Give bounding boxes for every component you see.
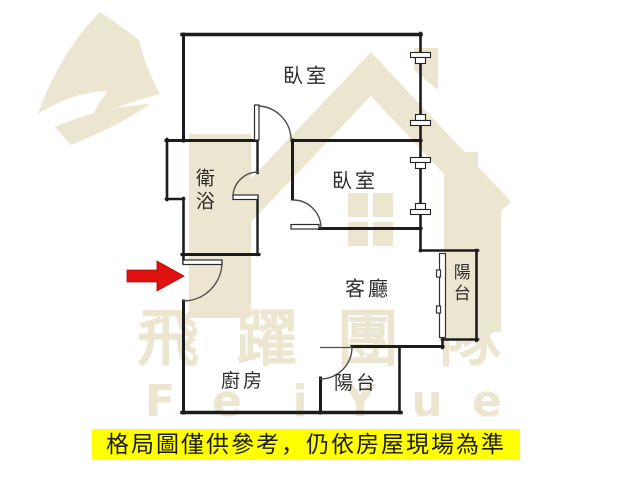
disclaimer-text: 格局圖僅供參考，仍依房屋現場為準 — [106, 433, 506, 456]
door-arc-bedroom-2 — [293, 200, 321, 228]
room-label-living-room: 客廳 — [345, 279, 391, 302]
door-panel-bedroom-2 — [291, 225, 319, 230]
room-label-balcony-bottom: 陽台 — [334, 373, 378, 395]
door-panel-entrance — [183, 260, 222, 265]
disclaimer-bar: 格局圖僅供參考，仍依房屋現場為準 — [92, 429, 520, 460]
sliding-door — [437, 254, 446, 338]
door-arc-entrance — [183, 262, 222, 301]
room-label-kitchen: 廚房 — [221, 371, 265, 393]
room-label-balcony-right: 陽台 — [450, 263, 470, 305]
floor-plan-page: 飛 躍 團 隊 F e i Y u e — [0, 0, 640, 480]
room-label-bedroom-top: 臥室 — [283, 66, 329, 89]
window-symbol — [411, 158, 431, 169]
door-arc-bedroom-top — [257, 106, 291, 140]
door-panel-bathroom — [233, 195, 258, 200]
entrance-arrow-icon — [127, 261, 184, 291]
room-label-bathroom: 衛浴 — [192, 168, 214, 214]
window-symbol — [411, 53, 431, 64]
door-arcs — [183, 106, 352, 379]
room-label-bedroom-2: 臥室 — [332, 171, 378, 194]
door-panel-bedroom-top — [255, 105, 260, 140]
walls-layer — [166, 33, 478, 413]
window-symbol — [411, 115, 431, 126]
window-symbol — [411, 204, 431, 215]
door-arc-bathroom — [233, 172, 258, 197]
